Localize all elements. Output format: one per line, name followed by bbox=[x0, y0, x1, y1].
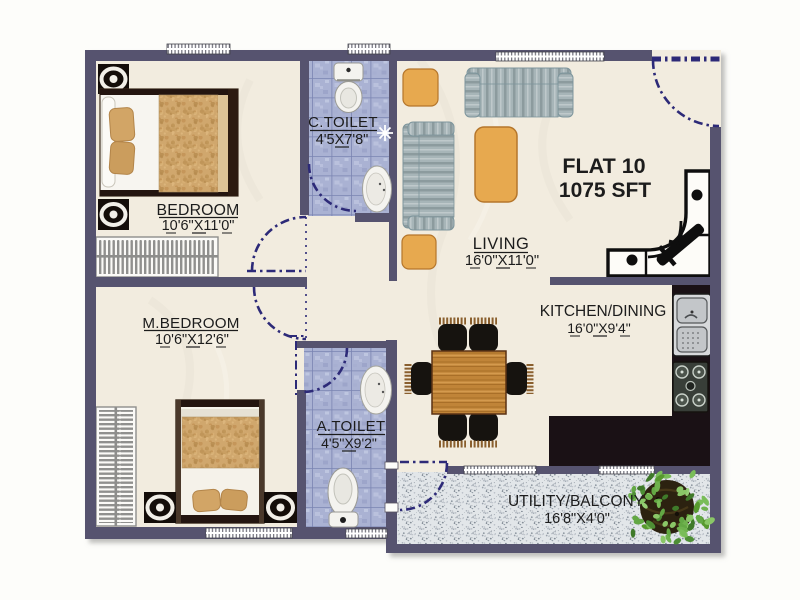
svg-text:16'8"X4'0": 16'8"X4'0" bbox=[544, 511, 610, 527]
svg-text:16'0"X9'4": 16'0"X9'4" bbox=[567, 320, 631, 336]
svg-text:10'6"X11'0": 10'6"X11'0" bbox=[162, 218, 235, 234]
svg-text:16'0"X11'0": 16'0"X11'0" bbox=[465, 253, 539, 269]
svg-text:M.BEDROOM: M.BEDROOM bbox=[142, 315, 239, 332]
svg-text:KITCHEN/DINING: KITCHEN/DINING bbox=[540, 303, 667, 320]
svg-text:FLAT 10: FLAT 10 bbox=[562, 154, 645, 178]
svg-text:4'5X7'8": 4'5X7'8" bbox=[316, 132, 369, 148]
svg-text:1075 SFT: 1075 SFT bbox=[559, 179, 651, 202]
svg-text:A.TOILET: A.TOILET bbox=[317, 418, 386, 435]
svg-text:10'6"X12'6": 10'6"X12'6" bbox=[155, 332, 229, 348]
svg-text:4'5"X9'2": 4'5"X9'2" bbox=[321, 435, 377, 451]
svg-text:BEDROOM: BEDROOM bbox=[156, 202, 239, 219]
svg-text:UTILITY/BALCONY: UTILITY/BALCONY bbox=[508, 493, 644, 510]
svg-text:LIVING: LIVING bbox=[473, 235, 530, 253]
svg-text:C.TOILET: C.TOILET bbox=[308, 114, 378, 131]
